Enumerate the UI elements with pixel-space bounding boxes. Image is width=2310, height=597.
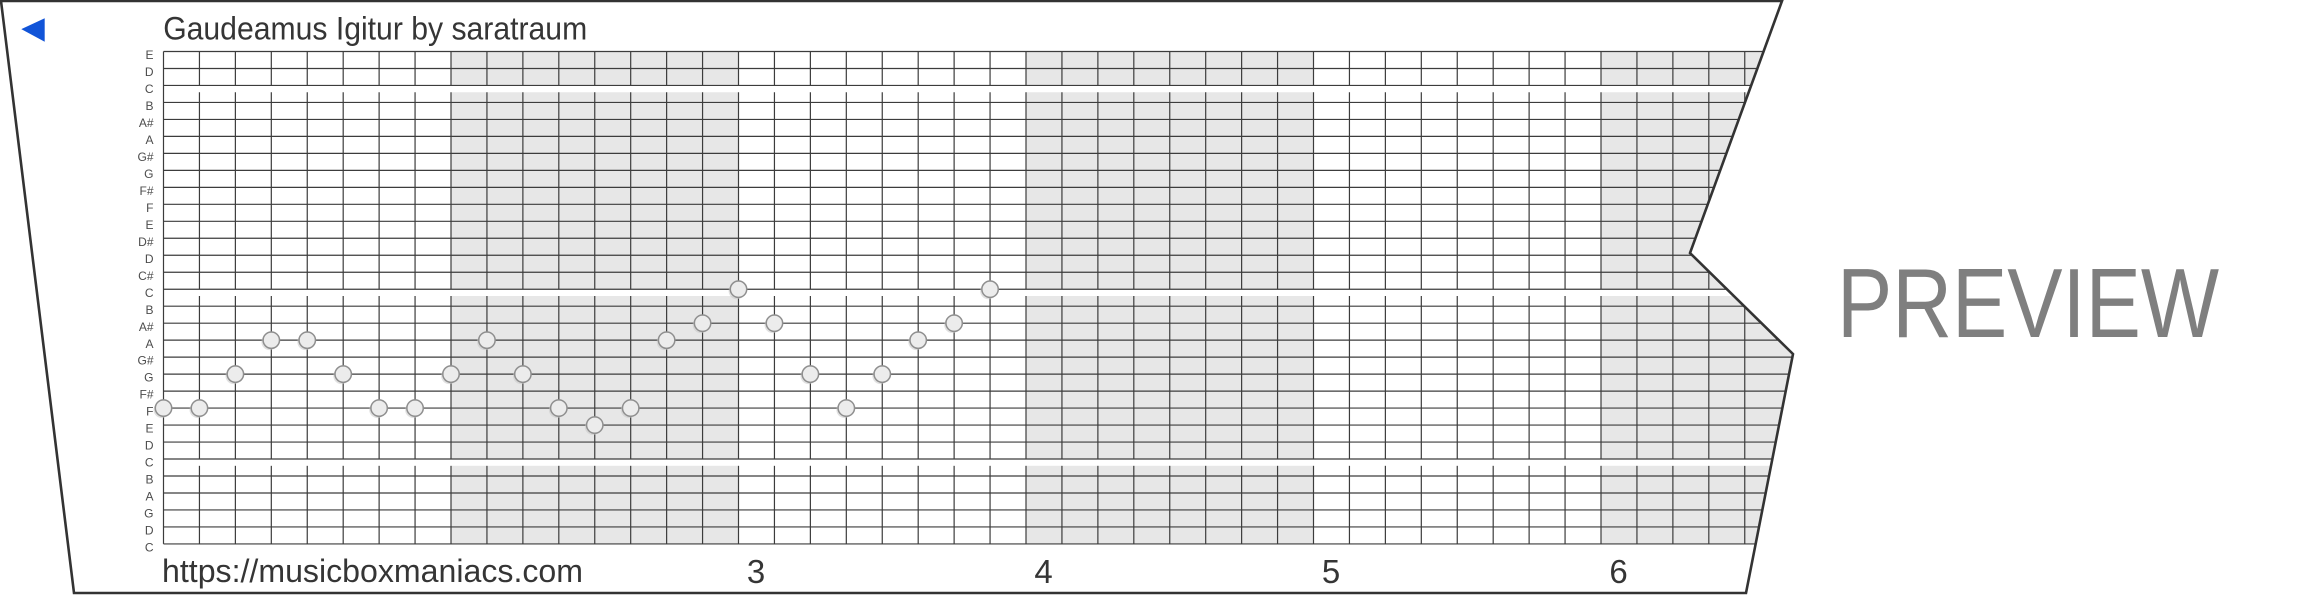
svg-text:A#: A# bbox=[139, 116, 154, 130]
svg-text:B: B bbox=[145, 99, 153, 113]
svg-text:F#: F# bbox=[139, 388, 153, 402]
svg-text:https://musicboxmaniacs.com: https://musicboxmaniacs.com bbox=[162, 553, 583, 589]
svg-text:Gaudeamus Igitur by saratraum: Gaudeamus Igitur by saratraum bbox=[163, 11, 587, 47]
svg-text:F: F bbox=[146, 201, 153, 215]
svg-text:A: A bbox=[145, 490, 153, 504]
svg-text:G: G bbox=[144, 167, 153, 181]
svg-text:E: E bbox=[145, 48, 153, 62]
svg-text:D#: D# bbox=[138, 235, 154, 249]
svg-text:C: C bbox=[145, 82, 154, 96]
svg-text:D: D bbox=[145, 524, 154, 538]
svg-text:PREVIEW: PREVIEW bbox=[1837, 248, 2219, 358]
svg-text:G#: G# bbox=[137, 354, 153, 368]
svg-text:D: D bbox=[145, 252, 154, 266]
svg-text:3: 3 bbox=[747, 553, 765, 590]
svg-text:F#: F# bbox=[139, 184, 153, 198]
svg-text:6: 6 bbox=[1609, 553, 1627, 590]
svg-text:5: 5 bbox=[1322, 553, 1340, 590]
svg-text:G#: G# bbox=[137, 150, 153, 164]
svg-text:C#: C# bbox=[138, 269, 154, 283]
svg-text:C: C bbox=[145, 456, 154, 470]
svg-text:A: A bbox=[145, 337, 153, 351]
svg-text:B: B bbox=[145, 473, 153, 487]
svg-text:A: A bbox=[145, 133, 153, 147]
svg-text:G: G bbox=[144, 371, 153, 385]
svg-text:C: C bbox=[145, 286, 154, 300]
svg-text:4: 4 bbox=[1034, 553, 1052, 590]
svg-text:F: F bbox=[146, 405, 153, 419]
svg-text:B: B bbox=[145, 303, 153, 317]
svg-text:E: E bbox=[145, 218, 153, 232]
svg-text:D: D bbox=[145, 439, 154, 453]
svg-text:A#: A# bbox=[139, 320, 154, 334]
svg-text:E: E bbox=[145, 422, 153, 436]
svg-text:C: C bbox=[145, 541, 154, 555]
svg-text:G: G bbox=[144, 507, 153, 521]
svg-text:D: D bbox=[145, 65, 154, 79]
